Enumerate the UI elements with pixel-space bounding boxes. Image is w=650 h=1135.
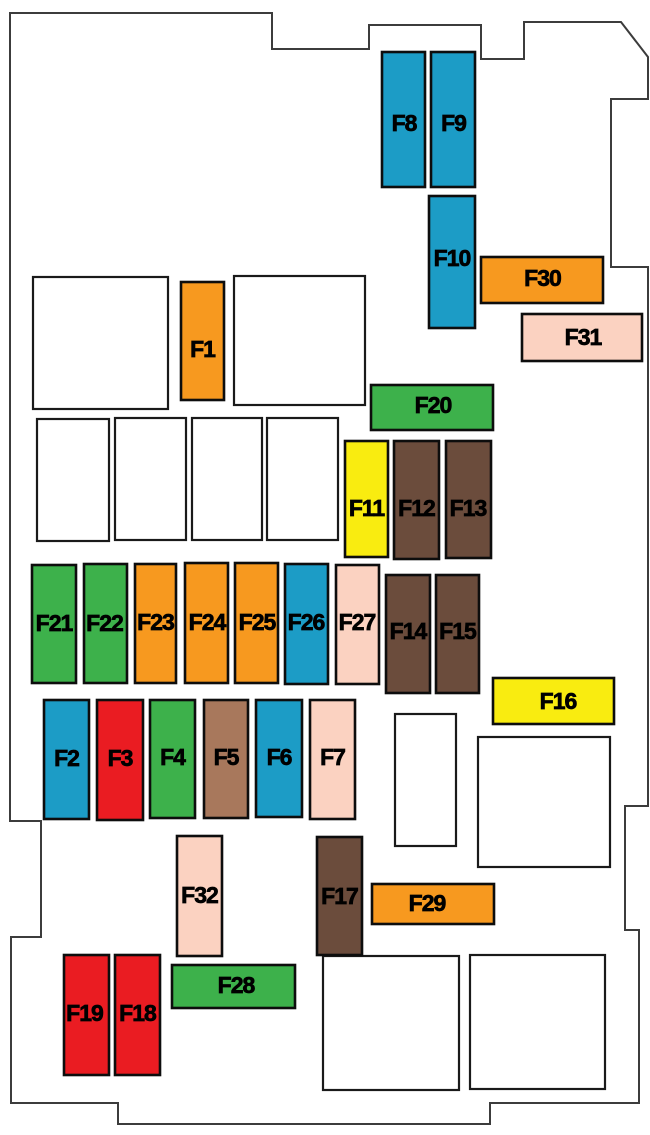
svg-text:F1: F1 (190, 336, 216, 362)
svg-text:F16: F16 (540, 688, 577, 714)
svg-text:F24: F24 (189, 609, 227, 635)
svg-text:F23: F23 (137, 609, 174, 635)
svg-text:F21: F21 (36, 610, 74, 636)
svg-text:F17: F17 (321, 883, 358, 909)
svg-text:F13: F13 (450, 495, 487, 521)
svg-text:F18: F18 (119, 1000, 157, 1026)
svg-text:F25: F25 (239, 609, 277, 635)
svg-text:F10: F10 (434, 245, 471, 271)
svg-text:F22: F22 (86, 610, 123, 636)
svg-text:F7: F7 (320, 744, 345, 770)
svg-text:F11: F11 (349, 495, 386, 521)
svg-text:F14: F14 (390, 618, 428, 644)
svg-text:F29: F29 (409, 890, 446, 916)
svg-text:F26: F26 (288, 609, 325, 635)
svg-text:F20: F20 (415, 392, 452, 418)
svg-text:F27: F27 (339, 609, 376, 635)
svg-text:F31: F31 (565, 324, 603, 350)
svg-text:F30: F30 (524, 265, 561, 291)
svg-text:F6: F6 (267, 744, 292, 770)
svg-text:F15: F15 (439, 618, 477, 644)
svg-text:F9: F9 (441, 110, 466, 136)
svg-text:F32: F32 (181, 882, 218, 908)
svg-text:F5: F5 (214, 744, 240, 770)
svg-text:F2: F2 (54, 745, 79, 771)
svg-text:F12: F12 (398, 495, 435, 521)
svg-text:F3: F3 (108, 745, 133, 771)
svg-text:F19: F19 (66, 1000, 103, 1026)
svg-text:F8: F8 (392, 110, 418, 136)
svg-text:F28: F28 (218, 972, 256, 998)
svg-text:F4: F4 (160, 744, 186, 770)
